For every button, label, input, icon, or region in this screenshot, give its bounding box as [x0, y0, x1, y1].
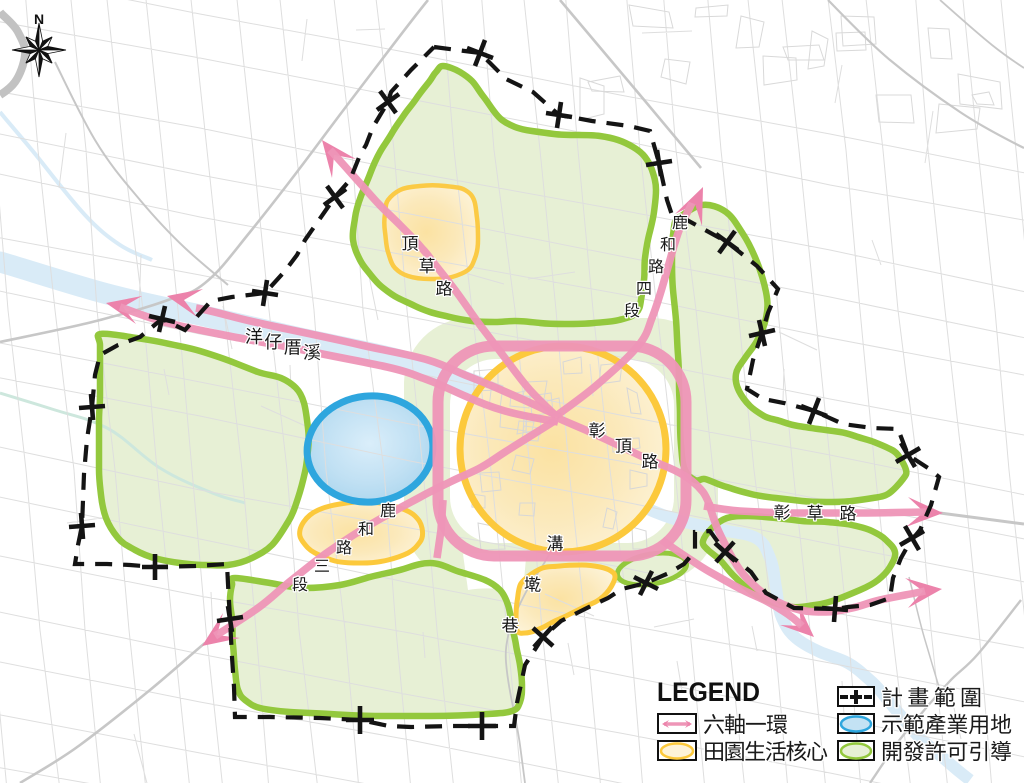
svg-text:N: N [34, 11, 44, 27]
svg-text:LEGEND: LEGEND [657, 677, 760, 707]
